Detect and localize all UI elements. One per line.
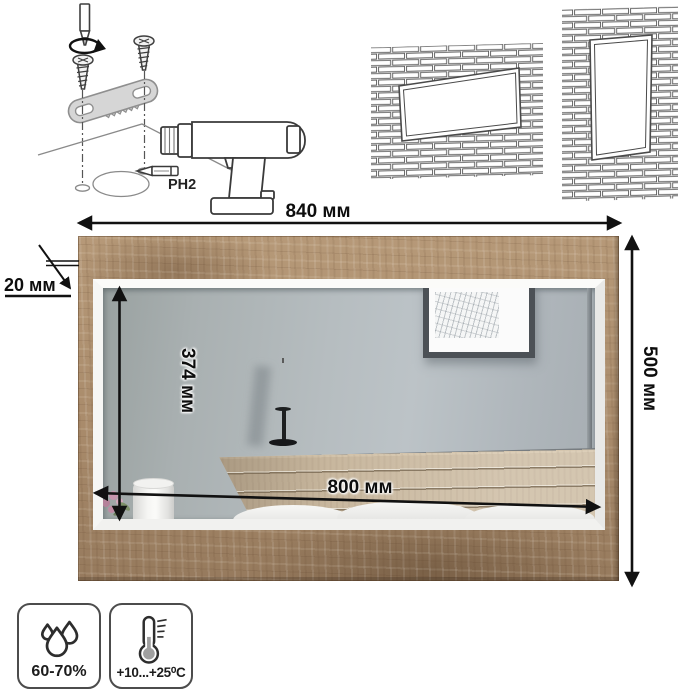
- temperature-badge: +10...+25⁰С: [109, 603, 193, 689]
- candlestick-stem: [282, 409, 286, 442]
- water-drops-icon: [34, 616, 84, 662]
- overall-width-label: 840 мм: [256, 201, 380, 223]
- mirror-height-label: 374 мм: [176, 348, 198, 413]
- picture-sketch: [435, 292, 499, 338]
- humidity-value: 60-70%: [31, 663, 86, 681]
- thermometer-icon: [130, 614, 172, 664]
- ph2-bit-label: PH2: [168, 177, 196, 193]
- frame-bottom-edge: [78, 577, 619, 581]
- rotation-arrow-icon: [70, 39, 106, 53]
- mirror-frame: [78, 236, 619, 581]
- reflected-picture-frame: [423, 288, 535, 358]
- candlestick-base: [269, 439, 297, 446]
- temperature-value: +10...+25⁰С: [117, 665, 186, 681]
- mounting-orientation-illustration: [350, 2, 700, 212]
- reflected-wall-corner: [587, 288, 592, 456]
- overall-height-label: 500 мм: [638, 346, 660, 411]
- candle-shadow: [247, 365, 271, 446]
- mirror-product-sheet: PH2: [0, 0, 700, 700]
- reflected-bedding: [233, 500, 595, 519]
- reflected-candle: [277, 362, 289, 408]
- mirror-width-label: 800 мм: [305, 477, 415, 499]
- mounting-plate-icon: [66, 77, 162, 129]
- frame-thickness-label: 20 мм: [4, 275, 56, 296]
- brick-wall-vertical: [562, 6, 678, 201]
- screw-icon: [73, 55, 93, 89]
- pillow: [337, 501, 479, 519]
- screw-icon: [134, 36, 154, 70]
- pillow: [465, 504, 595, 519]
- mirror-vertical-outline: [590, 35, 652, 160]
- reflected-flowers: [103, 486, 149, 519]
- pillow: [233, 505, 353, 519]
- frame-side-edge: [613, 236, 619, 581]
- brick-wall-horizontal: [371, 43, 543, 180]
- humidity-badge: 60-70%: [17, 603, 101, 689]
